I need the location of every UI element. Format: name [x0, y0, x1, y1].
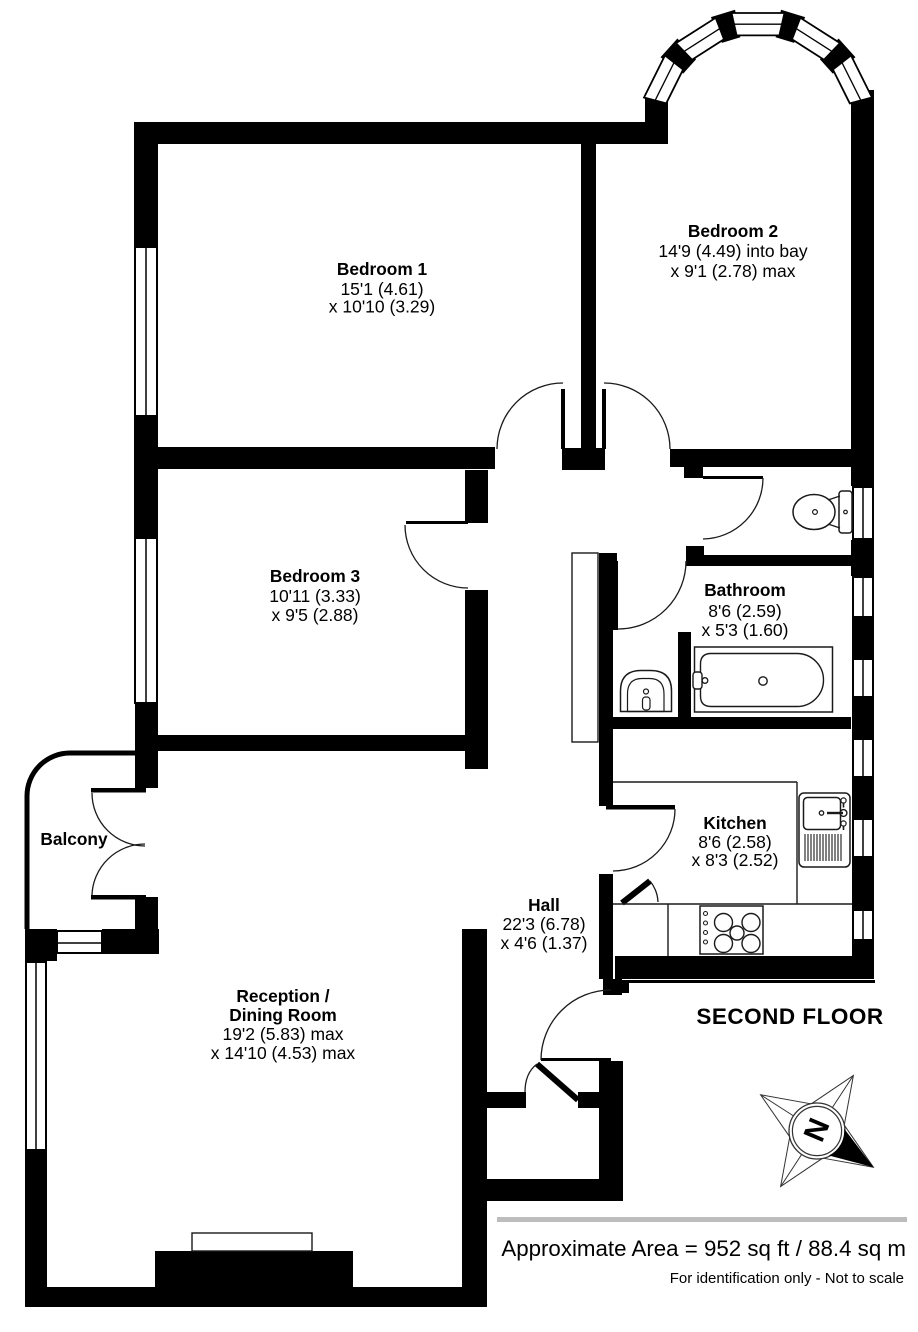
- svg-text:x 9'5 (2.88): x 9'5 (2.88): [272, 605, 359, 625]
- svg-text:Hall: Hall: [528, 895, 560, 915]
- svg-text:Reception /: Reception /: [236, 986, 329, 1006]
- svg-text:8'6 (2.58): 8'6 (2.58): [698, 832, 771, 852]
- svg-text:10'11 (3.33): 10'11 (3.33): [269, 586, 361, 606]
- svg-text:Balcony: Balcony: [40, 829, 108, 849]
- svg-text:Bedroom 2: Bedroom 2: [688, 221, 778, 241]
- svg-text:Dining Room: Dining Room: [229, 1005, 337, 1025]
- svg-text:Bedroom 1: Bedroom 1: [337, 259, 428, 279]
- svg-text:For identification only - Not: For identification only - Not to scale: [670, 1270, 904, 1287]
- svg-text:22'3 (6.78): 22'3 (6.78): [502, 914, 585, 934]
- svg-text:x 9'1 (2.78) max: x 9'1 (2.78) max: [671, 261, 796, 281]
- svg-text:x 14'10 (4.53) max: x 14'10 (4.53) max: [211, 1043, 356, 1063]
- svg-text:x 4'6 (1.37): x 4'6 (1.37): [501, 933, 588, 953]
- svg-text:Bathroom: Bathroom: [704, 580, 786, 600]
- svg-text:19'2 (5.83) max: 19'2 (5.83) max: [222, 1024, 343, 1044]
- svg-text:x 8'3 (2.52): x 8'3 (2.52): [692, 850, 779, 870]
- svg-text:x 5'3 (1.60): x 5'3 (1.60): [702, 620, 789, 640]
- svg-text:Bedroom 3: Bedroom 3: [270, 566, 360, 586]
- svg-text:Kitchen: Kitchen: [703, 813, 766, 833]
- svg-text:14'9 (4.49) into bay: 14'9 (4.49) into bay: [658, 241, 808, 261]
- svg-text:SECOND FLOOR: SECOND FLOOR: [696, 1004, 883, 1029]
- svg-text:8'6 (2.59): 8'6 (2.59): [708, 601, 781, 621]
- svg-text:Approximate Area = 952 sq ft /: Approximate Area = 952 sq ft / 88.4 sq m: [501, 1236, 906, 1261]
- svg-text:x 10'10 (3.29): x 10'10 (3.29): [329, 297, 435, 317]
